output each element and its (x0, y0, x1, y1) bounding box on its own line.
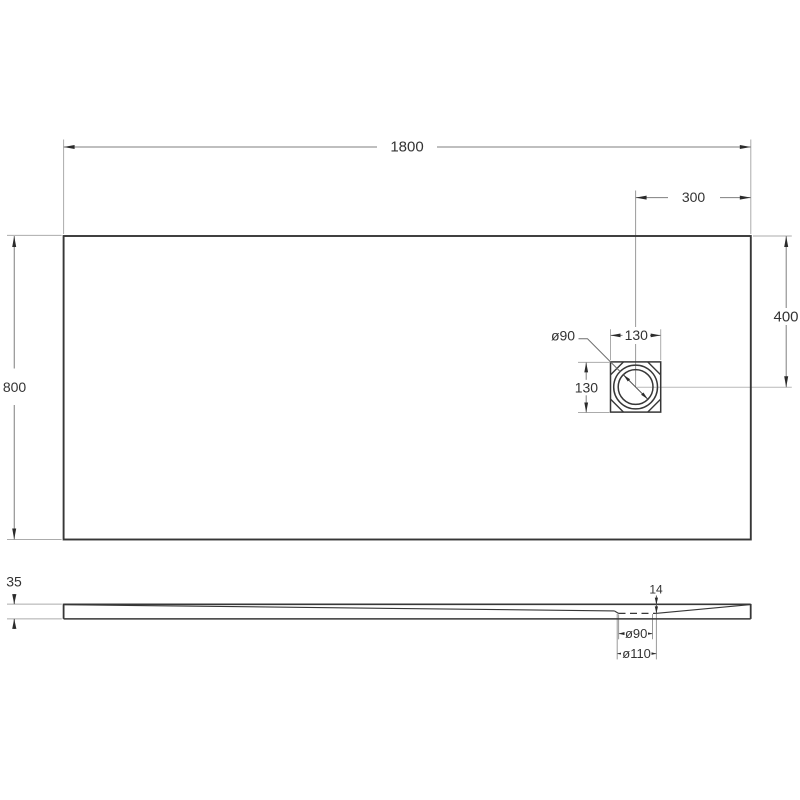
svg-text:ø110: ø110 (622, 646, 651, 661)
svg-text:14: 14 (649, 583, 663, 597)
svg-text:130: 130 (625, 327, 649, 343)
svg-text:1800: 1800 (390, 138, 423, 155)
svg-text:800: 800 (3, 379, 27, 395)
svg-text:130: 130 (575, 379, 599, 395)
svg-text:35: 35 (6, 573, 22, 589)
svg-text:400: 400 (773, 308, 798, 325)
svg-text:300: 300 (682, 189, 706, 205)
svg-text:ø90: ø90 (551, 328, 575, 344)
svg-text:ø90: ø90 (625, 626, 647, 641)
